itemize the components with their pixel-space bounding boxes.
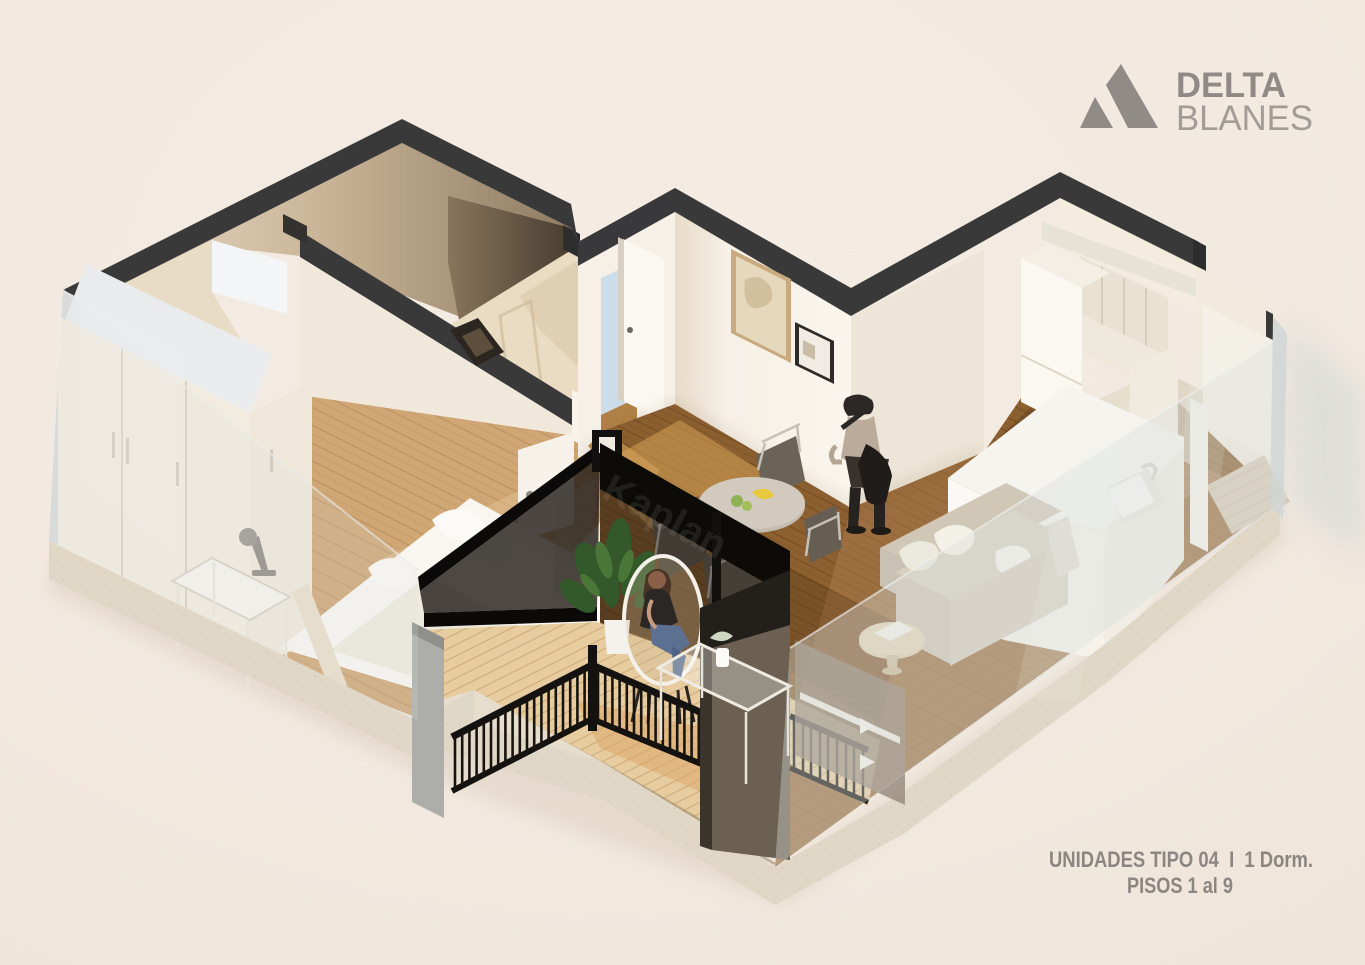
svg-text:PISOS 1 al 9: PISOS 1 al 9 bbox=[1127, 873, 1233, 898]
svg-text:UNIDADES TIPO 04 I 1 Dorm.: UNIDADES TIPO 04 I 1 Dorm. bbox=[1049, 847, 1313, 872]
svg-text:BLANES: BLANES bbox=[1176, 99, 1313, 138]
